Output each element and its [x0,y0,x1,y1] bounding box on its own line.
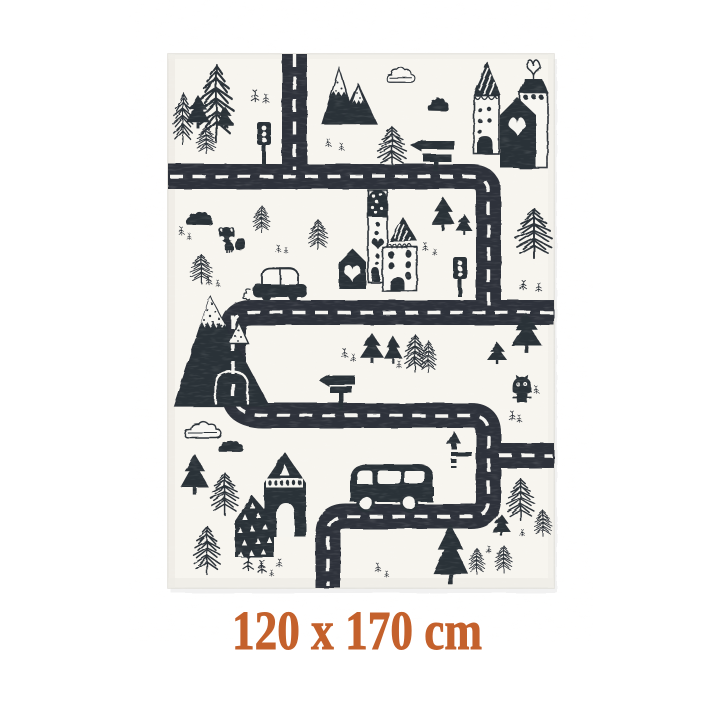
svg-text:120 x 170 cm: 120 x 170 cm [232,600,482,661]
